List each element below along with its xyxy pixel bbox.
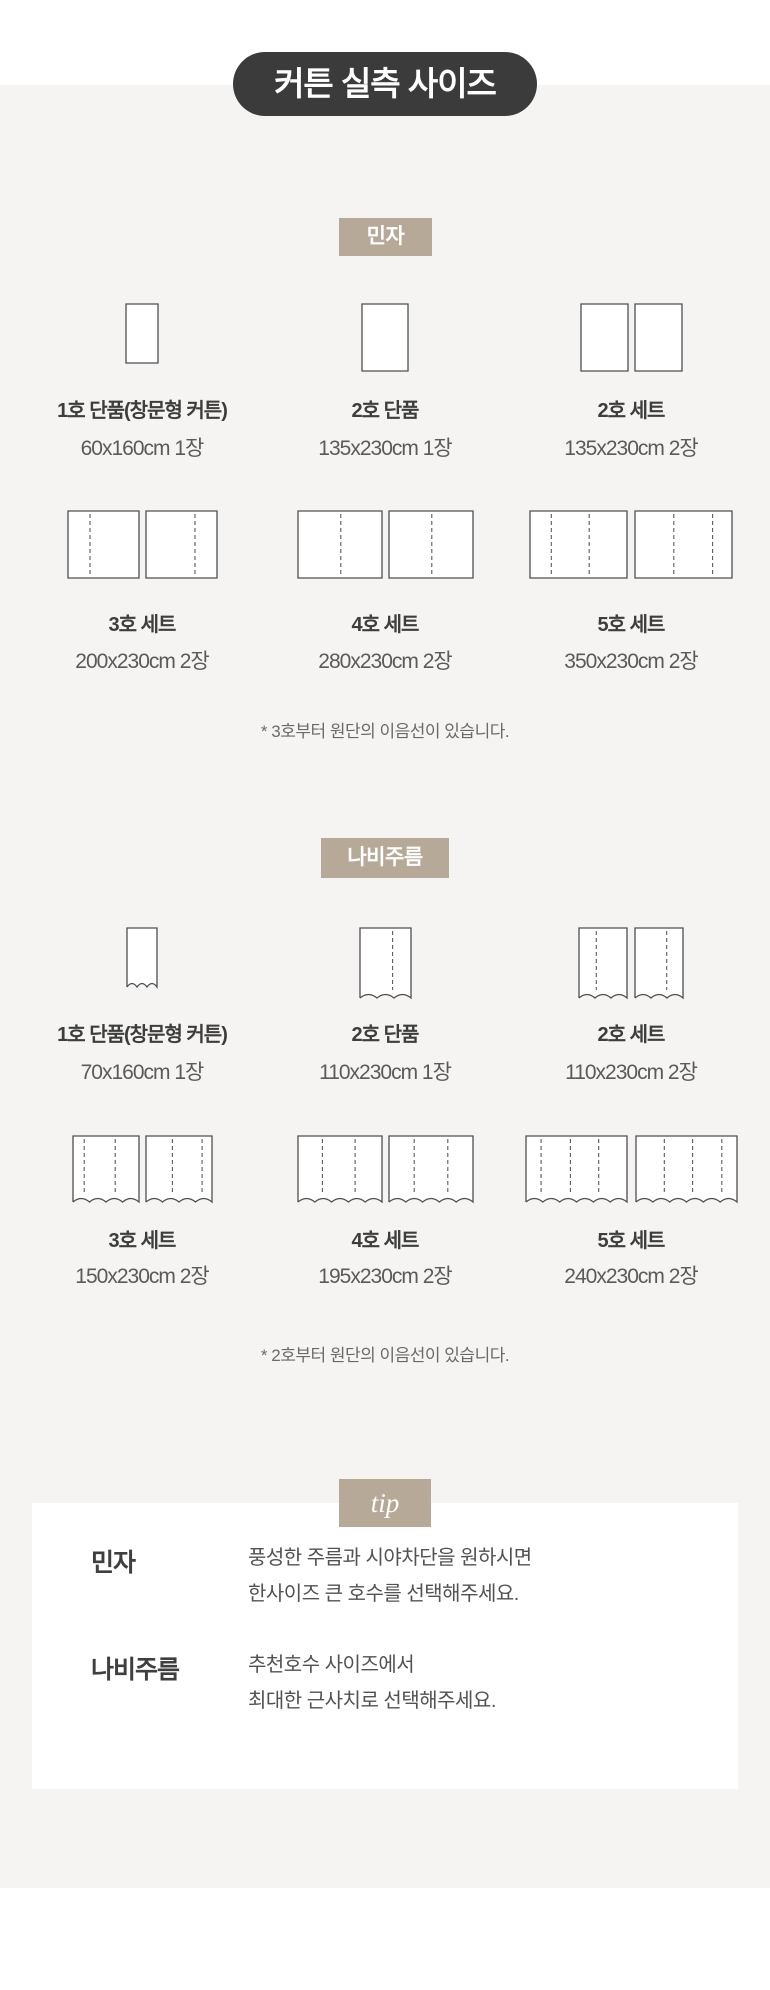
curtain-panel — [634, 510, 733, 579]
curtain-panel — [145, 510, 218, 579]
nabi-seam-note: * 2호부터 원단의 이음선이 있습니다. — [0, 1341, 770, 1366]
tip-badge: tip — [339, 1479, 431, 1527]
page-title: 커튼 실측 사이즈 — [233, 52, 537, 116]
tip-minja-label: 민자 — [91, 1543, 241, 1579]
curtain-panel — [359, 927, 412, 1000]
section-badge-minja: 민자 — [339, 218, 432, 256]
minja-4set-label: 4호 세트 — [265, 608, 505, 637]
curtain-panel — [361, 303, 409, 372]
curtain-panel — [297, 510, 383, 579]
curtain-panel — [297, 1135, 383, 1204]
minja-3set-diagram — [22, 510, 262, 579]
nabi-3set-label: 3호 세트 — [22, 1224, 262, 1253]
nabi-1-diagram — [22, 927, 262, 989]
curtain-panel — [145, 1135, 213, 1204]
nabi-2-diagram — [265, 927, 505, 1000]
nabi-5set-diagram — [511, 1135, 751, 1204]
curtain-panel — [580, 303, 629, 372]
curtain-panel — [72, 1135, 140, 1204]
curtain-panel — [635, 1135, 738, 1204]
nabi-4set-diagram — [265, 1135, 505, 1204]
minja-5set-label: 5호 세트 — [511, 608, 751, 637]
nabi-5set-size: 240x230cm 2장 — [511, 1260, 751, 1290]
nabi-2-label: 2호 단품 — [265, 1018, 505, 1047]
tip-minja-line-1: 풍성한 주름과 시야차단을 원하시면 — [248, 1541, 708, 1570]
minja-3set-size: 200x230cm 2장 — [22, 645, 262, 675]
minja-5set-size: 350x230cm 2장 — [511, 645, 751, 675]
curtain-panel — [388, 510, 474, 579]
curtain-panel — [634, 303, 683, 372]
tip-nabi-label: 나비주름 — [91, 1650, 241, 1686]
curtain-panel — [578, 927, 628, 1000]
nabi-1-label: 1호 단품(창문형 커튼) — [22, 1018, 262, 1047]
curtain-panel — [125, 303, 159, 364]
nabi-4set-size: 195x230cm 2장 — [265, 1260, 505, 1290]
curtain-panel — [388, 1135, 474, 1204]
minja-1-label: 1호 단품(창문형 커튼) — [22, 394, 262, 423]
minja-2set-diagram — [511, 303, 751, 372]
nabi-3set-diagram — [22, 1135, 262, 1204]
nabi-2-size: 110x230cm 1장 — [265, 1056, 505, 1086]
minja-1-size: 60x160cm 1장 — [22, 432, 262, 462]
minja-3set-label: 3호 세트 — [22, 608, 262, 637]
section-badge-nabijureum: 나비주름 — [321, 838, 449, 878]
nabi-4set-label: 4호 세트 — [265, 1224, 505, 1253]
nabi-3set-size: 150x230cm 2장 — [22, 1260, 262, 1290]
tip-minja-line-2: 한사이즈 큰 호수를 선택해주세요. — [248, 1577, 708, 1606]
minja-4set-diagram — [265, 510, 505, 579]
minja-4set-size: 280x230cm 2장 — [265, 645, 505, 675]
curtain-panel — [525, 1135, 628, 1204]
nabi-2set-size: 110x230cm 2장 — [511, 1056, 751, 1086]
minja-5set-diagram — [511, 510, 751, 579]
tip-nabi-line-1: 추천호수 사이즈에서 — [248, 1648, 708, 1677]
minja-1-diagram — [22, 303, 262, 364]
minja-2-size: 135x230cm 1장 — [265, 432, 505, 462]
minja-2-label: 2호 단품 — [265, 394, 505, 423]
nabi-2set-diagram — [511, 927, 751, 1000]
nabi-1-size: 70x160cm 1장 — [22, 1056, 262, 1086]
curtain-panel — [634, 927, 684, 1000]
nabi-2set-label: 2호 세트 — [511, 1018, 751, 1047]
minja-2-diagram — [265, 303, 505, 372]
minja-2set-size: 135x230cm 2장 — [511, 432, 751, 462]
tip-nabi-line-2: 최대한 근사치로 선택해주세요. — [248, 1684, 708, 1713]
curtain-panel — [126, 927, 158, 989]
curtain-size-infographic: 커튼 실측 사이즈 민자 1호 단품(창문형 커튼) 2호 단품 2호 세트 6… — [0, 0, 770, 1990]
curtain-panel — [529, 510, 628, 579]
minja-2set-label: 2호 세트 — [511, 394, 751, 423]
curtain-panel — [67, 510, 140, 579]
minja-seam-note: * 3호부터 원단의 이음선이 있습니다. — [0, 717, 770, 742]
nabi-5set-label: 5호 세트 — [511, 1224, 751, 1253]
